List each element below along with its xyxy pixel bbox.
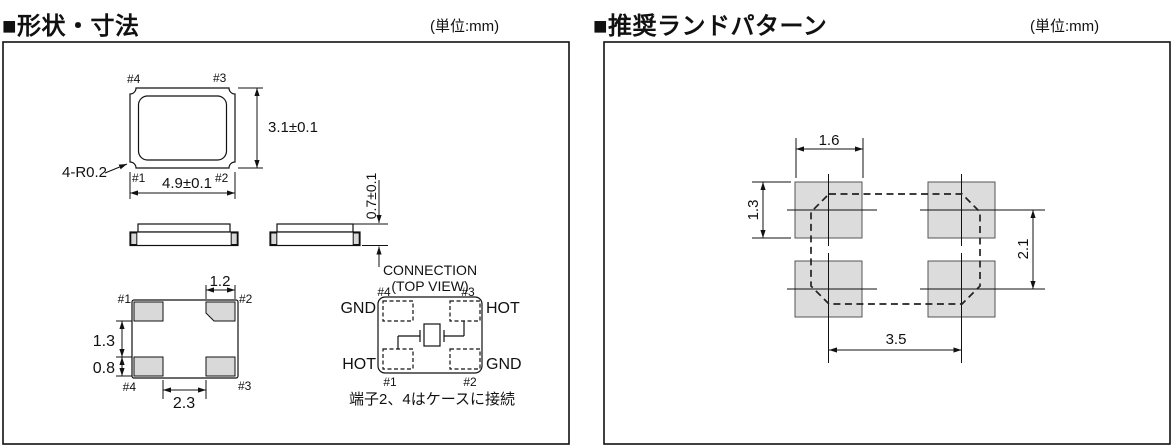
- dim-thickness-label: 0.7±0.1: [363, 172, 379, 219]
- dim-body-height-label: 3.1±0.1: [268, 119, 318, 136]
- dim-pad-width-label: 1.2: [210, 273, 231, 290]
- dim-body-width-label: 4.9±0.1: [162, 175, 212, 192]
- bottom-pad-1: [134, 302, 163, 321]
- dim-pad-height: 0.8: [93, 357, 132, 377]
- pin-label: #2: [463, 375, 477, 389]
- dim-pad-width: 1.2: [206, 273, 235, 299]
- dim-vertical-pitch: 2.1: [1015, 210, 1033, 289]
- bottom-pad-4: [134, 357, 163, 376]
- land-pattern: 1.6 1.3 2.1 3.5: [745, 132, 1045, 363]
- dim-vertical-pitch-label: 2.1: [1015, 239, 1032, 260]
- dim-thickness: 0.7±0.1: [349, 172, 388, 267]
- terminal-label: GND: [486, 356, 522, 373]
- bottom-pad-3: [206, 357, 235, 376]
- right-panel-unit-label: (単位:mm): [1030, 15, 1099, 36]
- connection-subtitle: (TOP VIEW): [391, 278, 468, 294]
- end-view-lid: [277, 224, 353, 232]
- dim-land-pad-height: 1.3: [745, 182, 791, 238]
- side-view-pad: [231, 233, 237, 245]
- connection-diagram: CONNECTION (TOP VIEW) #4 #3 #1 #2 GND HO…: [340, 262, 521, 408]
- pin-label: #2: [239, 292, 253, 306]
- connection-title: CONNECTION: [383, 262, 477, 278]
- datasheet-page: { "header": { "left": { "title": "■形状・寸法…: [0, 0, 1174, 448]
- left-panel-title: ■形状・寸法: [2, 6, 140, 41]
- end-view-base: [270, 232, 360, 246]
- pin-label: #2: [215, 171, 229, 185]
- dim-pad-gap-label: 1.3: [93, 333, 115, 350]
- end-view-pad: [353, 233, 359, 245]
- dim-land-pad-width-label: 1.6: [819, 132, 840, 149]
- connection-note: 端子2、4はケースに接続: [349, 391, 515, 408]
- dim-pad-height-label: 0.8: [93, 360, 115, 377]
- pin-label: #4: [123, 380, 137, 394]
- corner-radius-label: 4-R0.2: [62, 164, 107, 181]
- dim-horizontal-pitch: 3.5: [829, 331, 962, 350]
- land-pattern-drawing: 1.6 1.3 2.1 3.5: [600, 40, 1174, 448]
- pin-label: #1: [132, 171, 146, 185]
- pin-label: #3: [461, 285, 475, 299]
- dim-horizontal-pitch-label: 3.5: [886, 331, 907, 348]
- dim-land-pad-height-label: 1.3: [745, 200, 762, 221]
- pin-label: #4: [377, 285, 391, 299]
- dim-body-height: 3.1±0.1: [238, 88, 318, 168]
- dim-pad-span: 2.3: [163, 380, 206, 412]
- dim-pad-gap: 1.3: [93, 321, 132, 357]
- terminal-label: HOT: [486, 300, 520, 317]
- right-panel-title: ■推奨ランドパターン: [593, 6, 827, 41]
- end-view-pad: [271, 233, 277, 245]
- package-top-view: #4 #3 #1 #2 3.1±0.1 4.9±0.1 4-R0.2: [62, 71, 318, 199]
- pin-label: #3: [213, 71, 227, 85]
- side-view-pad: [131, 233, 137, 245]
- package-body-outline: [130, 88, 235, 168]
- pin-label: #1: [118, 292, 132, 306]
- terminal-label: GND: [340, 300, 376, 317]
- dim-land-pad-width: 1.6: [796, 132, 863, 178]
- pin-label: #3: [238, 379, 252, 393]
- right-panel-frame: [604, 42, 1170, 444]
- shape-dimensions-drawing: #4 #3 #1 #2 3.1±0.1 4.9±0.1 4-R0.2: [0, 40, 600, 448]
- side-view-base: [130, 232, 238, 246]
- pin-label: #4: [127, 72, 141, 86]
- dim-pad-span-label: 2.3: [173, 395, 195, 412]
- package-bottom-view: #1 #2 #4 #3 1.2 1.3 0.8 2.3: [93, 273, 253, 412]
- left-panel-unit-label: (単位:mm): [430, 15, 499, 36]
- terminal-label: HOT: [342, 356, 376, 373]
- pin-label: #1: [383, 375, 397, 389]
- side-view-lid: [138, 224, 230, 232]
- corner-radius-callout: 4-R0.2: [62, 164, 127, 181]
